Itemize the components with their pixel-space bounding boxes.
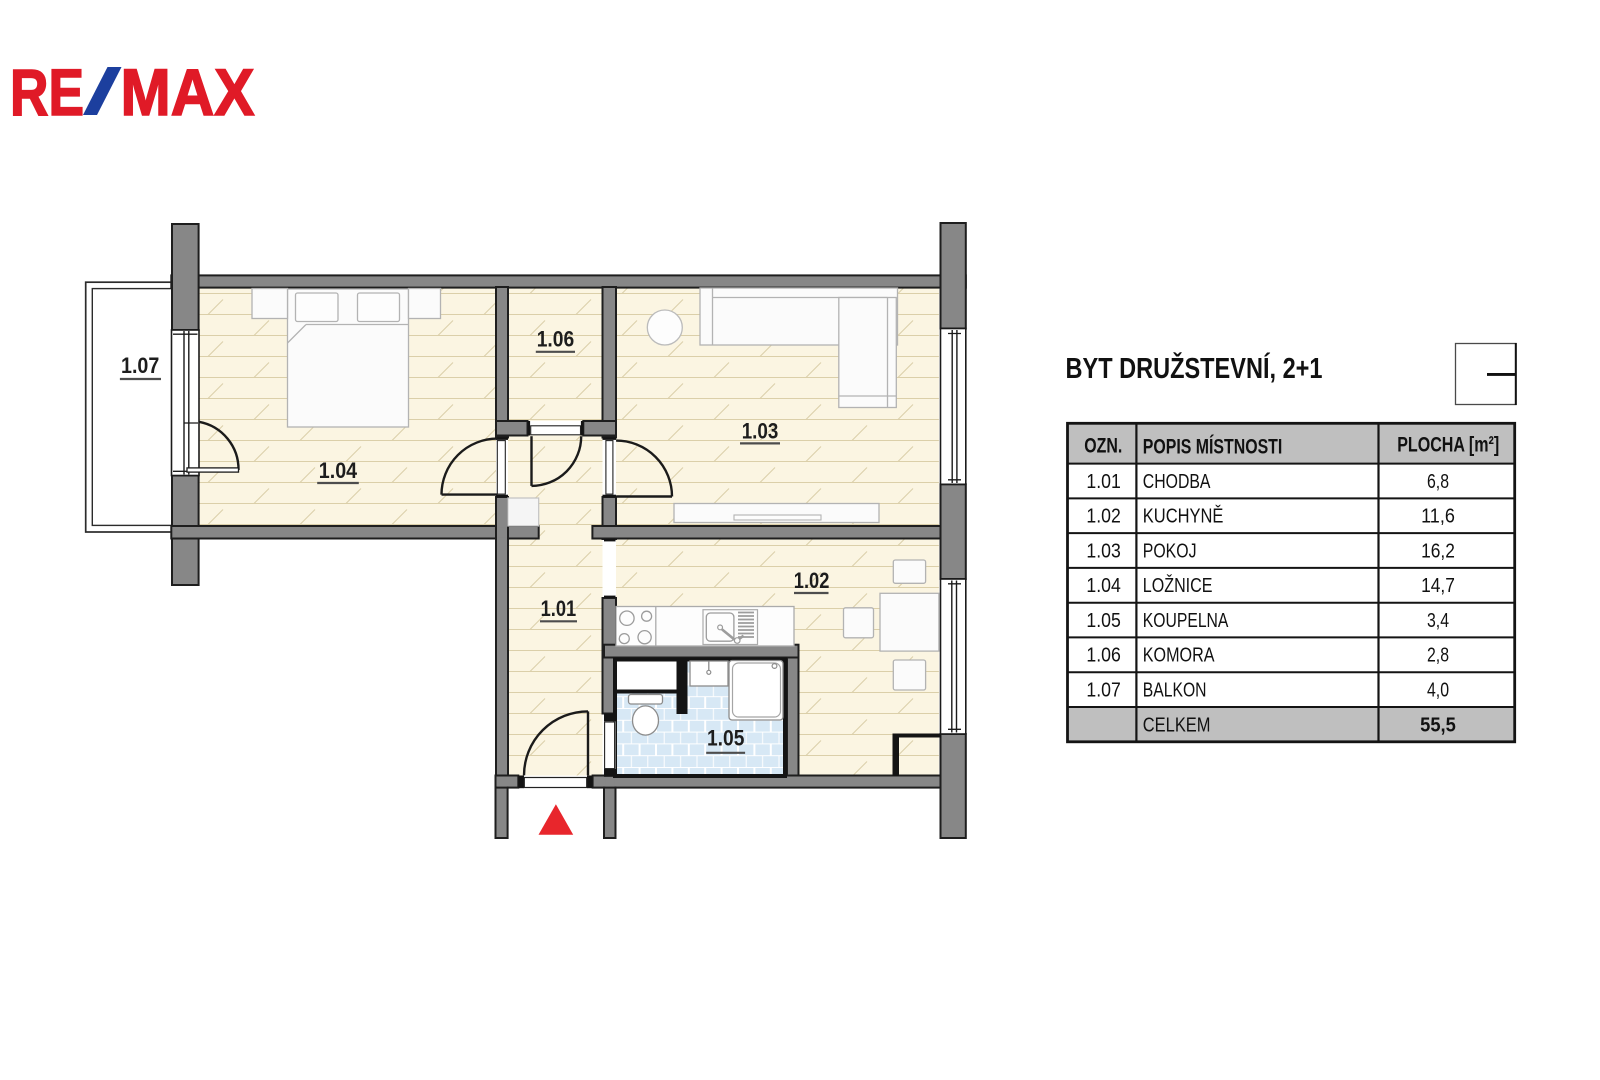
svg-text:1.07: 1.07: [121, 353, 159, 378]
svg-text:1.03: 1.03: [742, 418, 779, 443]
svg-text:55,5: 55,5: [1420, 713, 1456, 736]
svg-text:1.01: 1.01: [541, 596, 577, 621]
svg-text:1.05: 1.05: [1086, 609, 1120, 632]
svg-text:POPIS MÍSTNOSTI: POPIS MÍSTNOSTI: [1143, 434, 1283, 459]
svg-text:RE: RE: [10, 55, 84, 129]
svg-text:1.02: 1.02: [794, 568, 830, 593]
svg-text:POKOJ: POKOJ: [1143, 539, 1197, 562]
svg-text:OZN.: OZN.: [1084, 434, 1122, 458]
svg-text:11,6: 11,6: [1421, 505, 1455, 528]
svg-text:PLOCHA [m²]: PLOCHA [m²]: [1397, 433, 1499, 457]
svg-text:6,8: 6,8: [1427, 470, 1449, 493]
svg-text:1.04: 1.04: [1086, 574, 1120, 597]
svg-text:1.04: 1.04: [319, 458, 358, 483]
svg-text:CELKEM: CELKEM: [1143, 713, 1211, 736]
svg-text:1.06: 1.06: [1086, 644, 1120, 667]
svg-text:MAX: MAX: [121, 55, 255, 129]
svg-text:3,4: 3,4: [1427, 609, 1449, 632]
svg-text:CHODBA: CHODBA: [1143, 470, 1211, 493]
svg-text:1.06: 1.06: [537, 327, 575, 352]
svg-text:KOUPELNA: KOUPELNA: [1143, 609, 1229, 632]
svg-text:BALKON: BALKON: [1143, 679, 1207, 702]
svg-text:16,2: 16,2: [1421, 539, 1455, 562]
svg-text:KUCHYNĚ: KUCHYNĚ: [1143, 505, 1224, 528]
svg-text:1.07: 1.07: [1086, 679, 1120, 702]
svg-text:LOŽNICE: LOŽNICE: [1143, 574, 1213, 597]
svg-text:1.05: 1.05: [707, 726, 744, 751]
svg-text:KOMORA: KOMORA: [1143, 644, 1215, 667]
svg-text:14,7: 14,7: [1421, 574, 1455, 597]
svg-text:1.02: 1.02: [1086, 505, 1120, 528]
svg-text:1.01: 1.01: [1086, 470, 1120, 493]
svg-text:4,0: 4,0: [1427, 679, 1449, 702]
svg-text:BYT DRUŽSTEVNÍ, 2+1: BYT DRUŽSTEVNÍ, 2+1: [1066, 351, 1323, 385]
svg-text:2,8: 2,8: [1427, 644, 1449, 667]
svg-text:1.03: 1.03: [1086, 539, 1120, 562]
